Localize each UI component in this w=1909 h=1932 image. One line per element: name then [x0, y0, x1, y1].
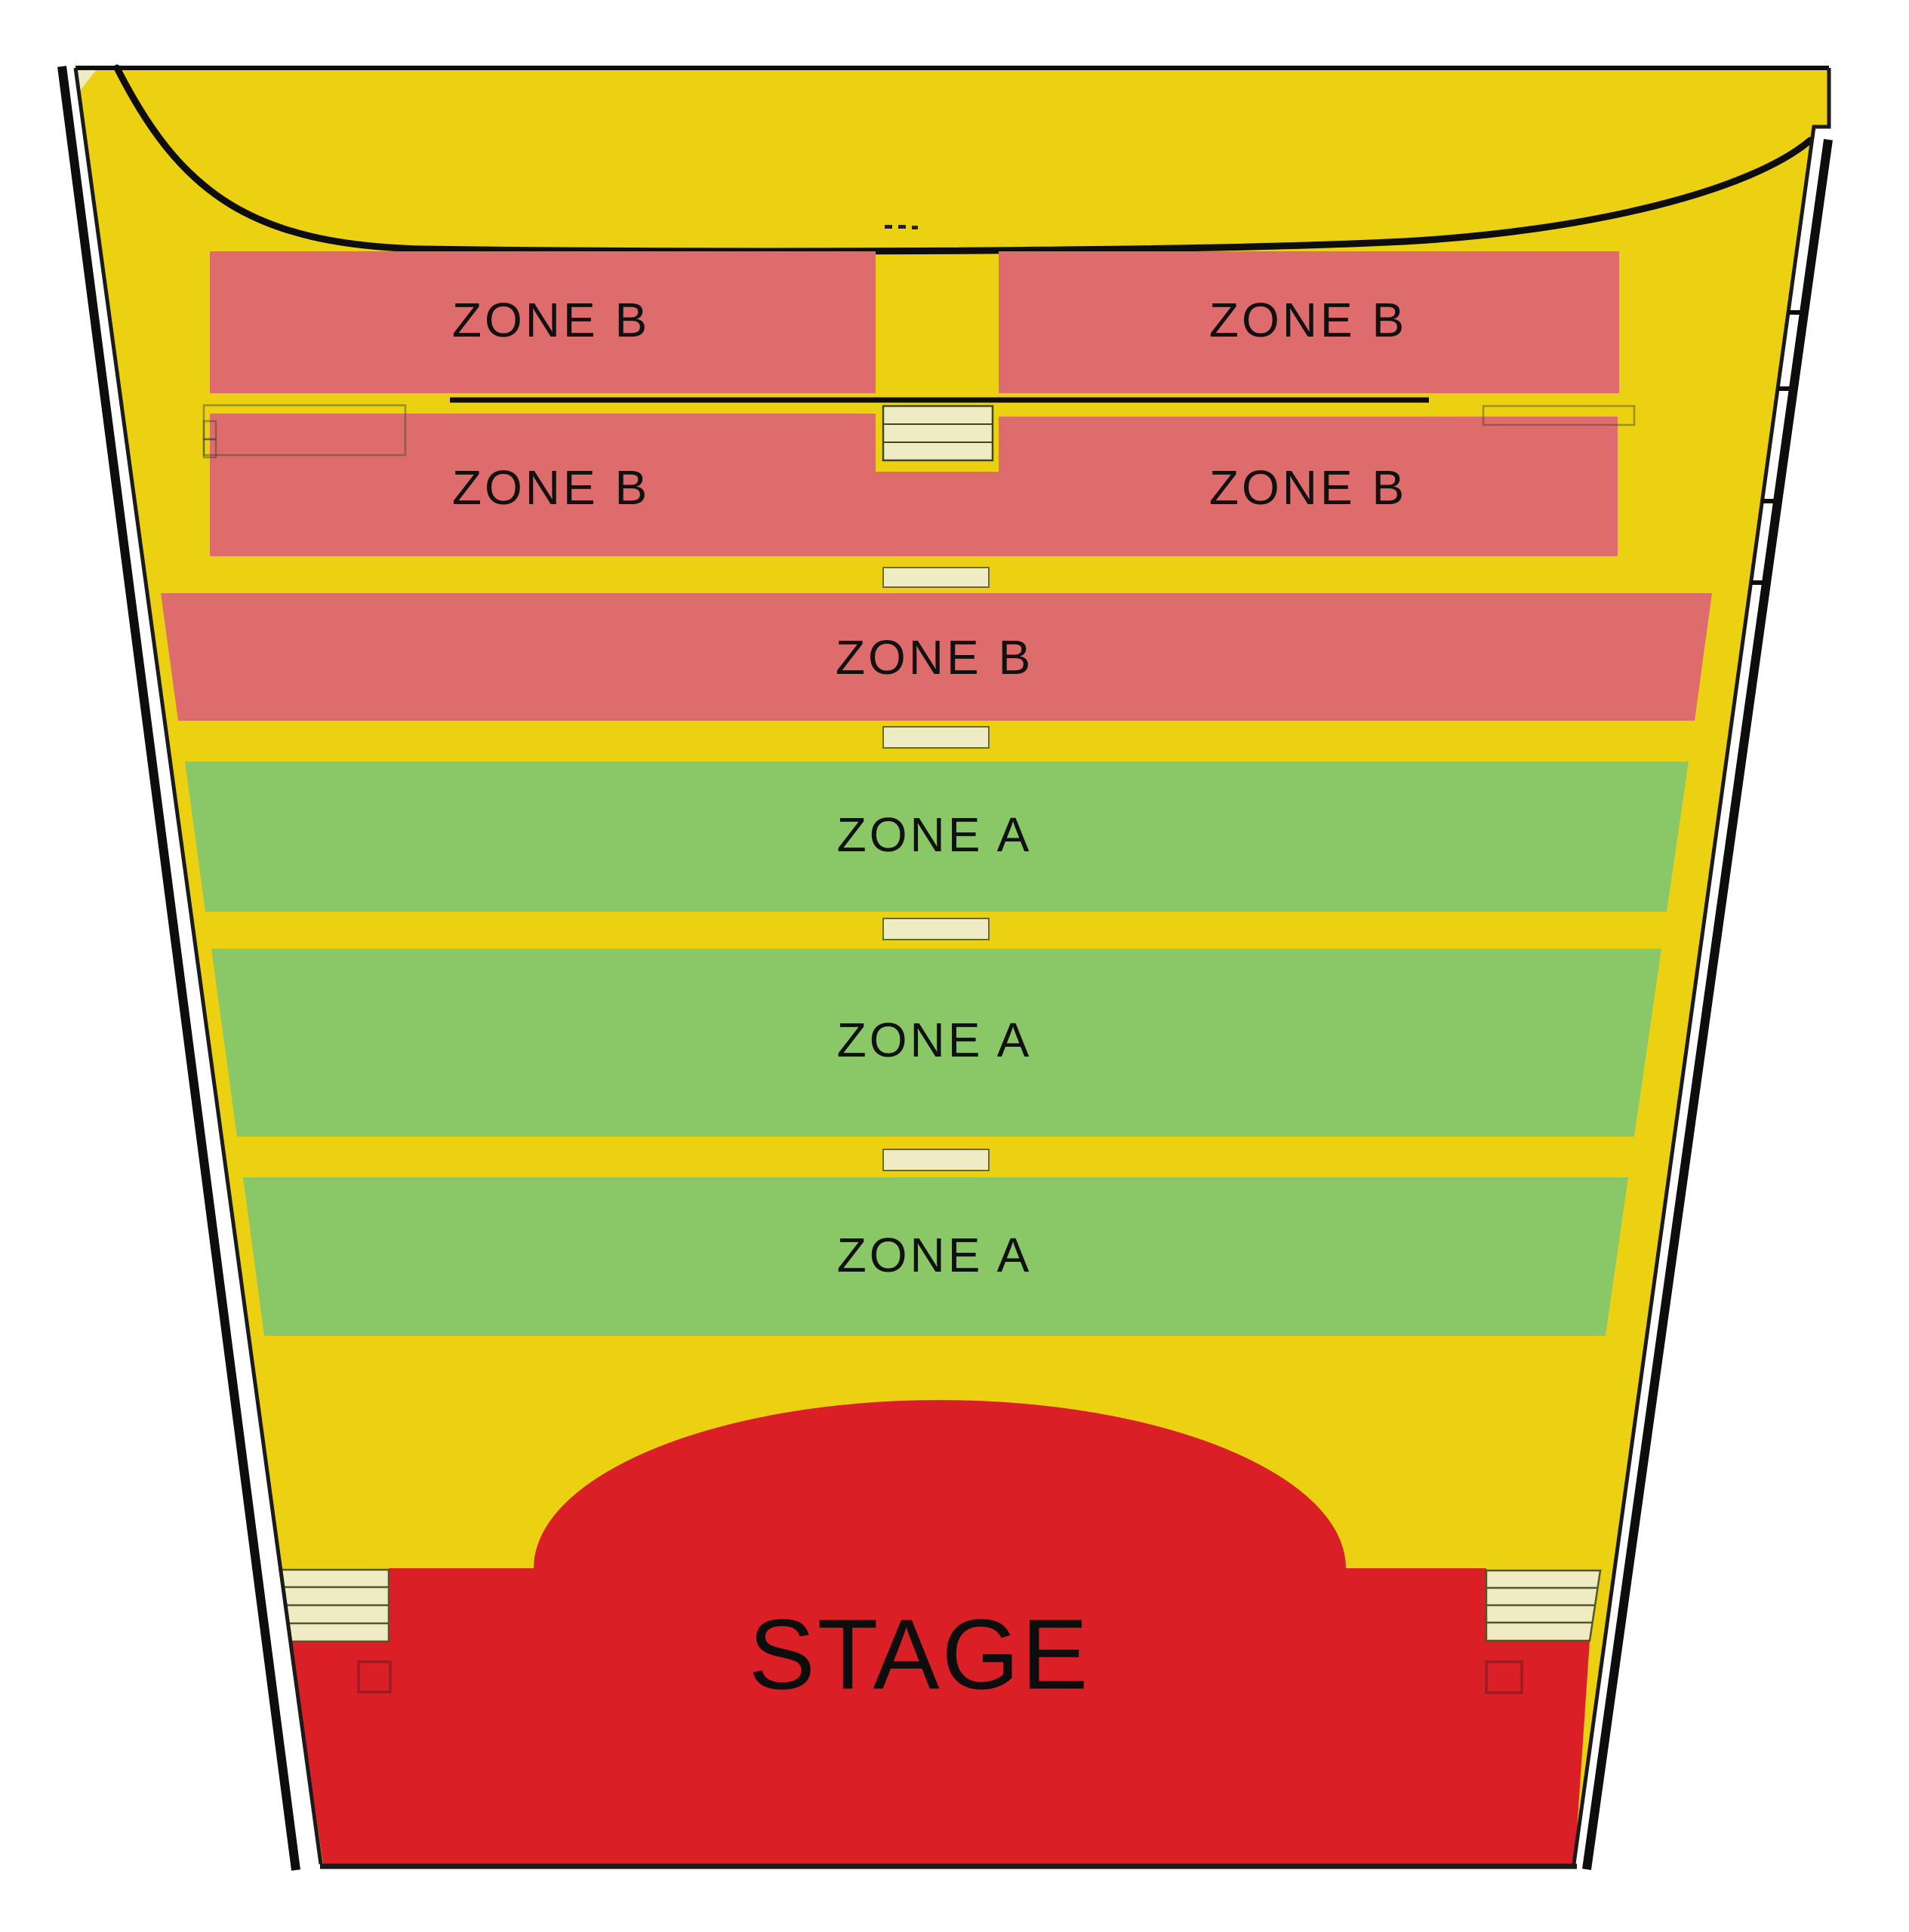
stage-label: STAGE — [749, 1598, 1091, 1712]
zone-label-row4[interactable]: ZONE A — [837, 807, 1033, 863]
zone-label-row2-left[interactable]: ZONE B — [452, 460, 650, 515]
zone-label-row1-left[interactable]: ZONE B — [452, 292, 650, 348]
zone-label-row5[interactable]: ZONE A — [837, 1012, 1033, 1068]
stage-stairs-left — [282, 1570, 389, 1641]
zone-label-row6[interactable]: ZONE A — [837, 1227, 1033, 1283]
zone-label-row3[interactable]: ZONE B — [836, 629, 1033, 685]
center-stairs-upper — [883, 406, 993, 460]
zone-label-row2-right[interactable]: ZONE B — [1209, 460, 1407, 515]
stage-stairs-right — [1486, 1571, 1600, 1641]
zone-label-row1-right[interactable]: ZONE B — [1209, 292, 1407, 348]
venue-seating-map: ZONE B ZONE B ZONE B ZONE B ZONE B ZONE … — [0, 0, 1909, 1932]
